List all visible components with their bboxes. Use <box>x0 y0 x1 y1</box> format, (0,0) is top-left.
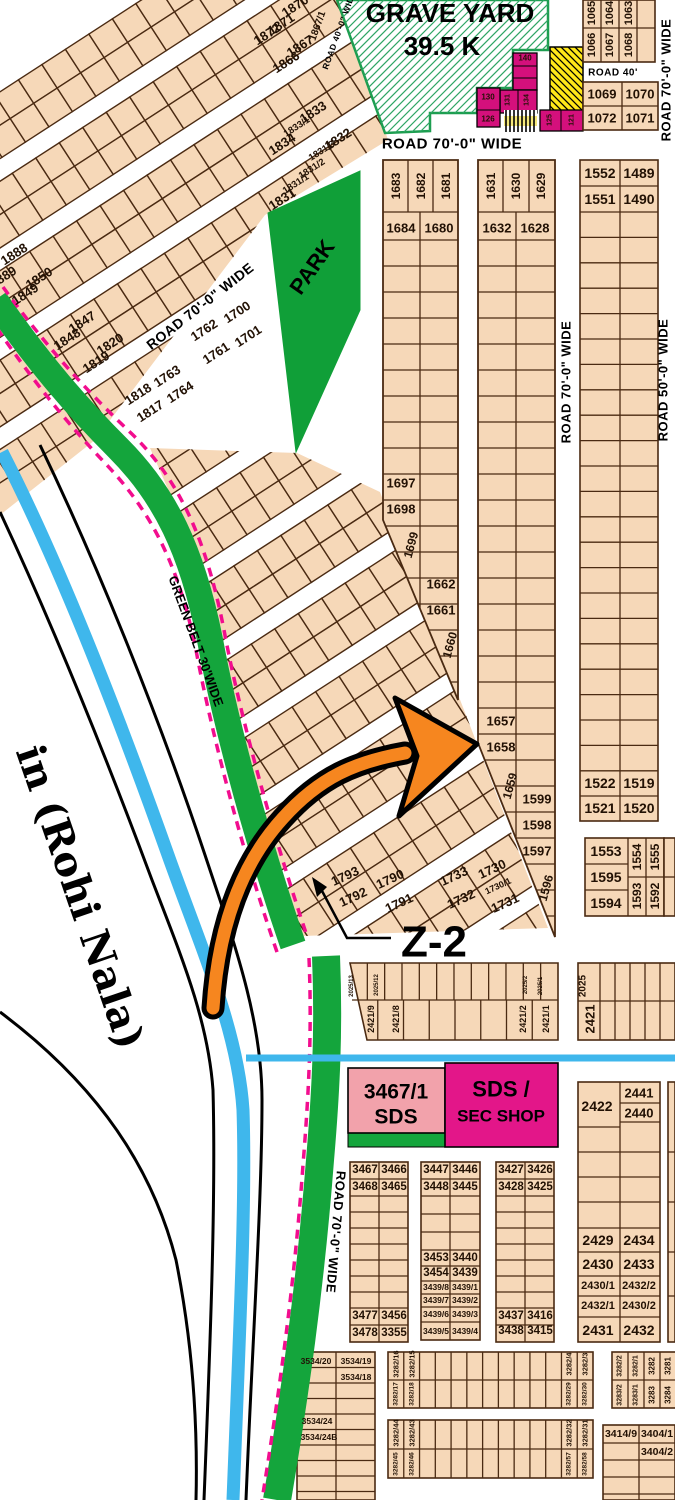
plot-number-label: 3282/31 <box>581 1419 590 1446</box>
plot-number-label: 1661 <box>427 603 456 618</box>
plot-number-label: 3283 <box>648 1386 657 1404</box>
plot-number-label: 1594 <box>590 895 621 911</box>
plot-number-label: 3477 <box>352 1310 378 1322</box>
plot-number-label: 2431 <box>582 1322 613 1338</box>
plot-number-label: 3439 <box>452 1267 478 1279</box>
plot-number-label: 1632 <box>483 221 512 236</box>
plot-number-label: 2025/1 <box>538 976 544 995</box>
plot-number-label: 1072 <box>588 111 617 126</box>
plot-number-label: 2434 <box>623 1232 654 1248</box>
plot-number-label: 3282/15 <box>408 1350 417 1377</box>
gate-crosswalk-symbol <box>504 110 537 132</box>
plot-number-label: 2421/1 <box>541 1005 551 1033</box>
plot-number-label: 1068 <box>623 33 635 57</box>
plot-number-label: 1489 <box>623 165 654 181</box>
plot-number-label: 3355 <box>381 1327 407 1339</box>
plot-number-label: 2432 <box>623 1322 654 1338</box>
sds-plot-label: 3467/1 <box>364 1081 429 1104</box>
plot-number-label: 3439/2 <box>452 1295 478 1305</box>
plot-number-label: 130 <box>481 93 495 102</box>
plot-number-label: 2433 <box>623 1256 654 1272</box>
zone-z2-label: Z-2 <box>401 918 467 967</box>
plot-number-label: 3282 <box>648 1357 657 1375</box>
plot-number-label: 3282/16 <box>392 1350 401 1377</box>
plot-number-label: 1597 <box>523 844 552 859</box>
plot-number-label: 3437 <box>498 1310 524 1322</box>
plot-number-label: 2429 <box>582 1232 613 1248</box>
grave-yard-title: GRAVE YARD <box>366 0 535 28</box>
plot-number-label: 1069 <box>588 87 617 102</box>
plot-number-label: 3534/24 <box>302 1416 333 1426</box>
sds-plot-label: SDS <box>374 1106 417 1129</box>
plot-number-label: 3415 <box>527 1325 553 1337</box>
road-label: ROAD 70'-0" WIDE <box>382 136 522 153</box>
plot-number-label: 126 <box>481 115 495 124</box>
plot-number-label: 3439/8 <box>423 1282 449 1292</box>
plot-number-label: 1063 <box>623 1 635 25</box>
plot-number-label: 1593 <box>630 882 644 909</box>
plot-number-label: 3283/2 <box>617 1384 624 1406</box>
plot-number-label: 1698 <box>387 502 416 517</box>
plot-number-label: 3446 <box>452 1164 478 1176</box>
plot-number-label: 2430 <box>582 1256 613 1272</box>
plot-number-label: 3284 <box>664 1386 673 1404</box>
plot-number-label: 1595 <box>590 869 621 885</box>
plot-number-label: 3439/3 <box>452 1309 478 1319</box>
plot-number-label: 3283/1 <box>633 1384 640 1406</box>
plot-number-label: 2025 <box>578 974 589 997</box>
plot-number-label: 3534/19 <box>341 1356 372 1366</box>
plot-number-label: 1522 <box>584 775 615 791</box>
plot-number-label: 3414/9 <box>605 1428 637 1440</box>
plot-number-label: 125 <box>547 114 554 126</box>
plot-number-label: 1658 <box>487 740 516 755</box>
plot-number-label: 3282/17 <box>393 1382 400 1406</box>
plot-number-label: 3282/30 <box>582 1382 589 1406</box>
plot-strip-1489-1552 <box>580 160 658 821</box>
plot-number-label: 2432/1 <box>581 1300 615 1312</box>
plot-number-label: 3282/4 <box>565 1352 574 1376</box>
plot-number-label: 134 <box>524 94 531 106</box>
plot-number-label: 3465 <box>381 1181 407 1193</box>
plot-number-label: 3534/20 <box>301 1356 332 1366</box>
plot-number-label: 3404/1 <box>641 1428 673 1440</box>
plot-number-label: 2421/8 <box>391 1005 401 1033</box>
plot-number-label: 1553 <box>590 843 621 859</box>
plot-number-label: 1065 <box>586 1 598 25</box>
plot-number-label: 1630 <box>509 172 523 199</box>
plot-number-label: 3282/2 <box>617 1355 624 1377</box>
plot-number-label: 1697 <box>387 476 416 491</box>
strip-3282-upper <box>388 1352 593 1408</box>
society-plot-map: 187018711867187218661867/1183318321833/1… <box>0 0 675 1500</box>
plot-number-label: 1071 <box>626 111 655 126</box>
plot-number-label: 1662 <box>427 577 456 592</box>
plot-number-label: 1598 <box>523 818 552 833</box>
map-viewport: 187018711867187218661867/1183318321833/1… <box>0 0 675 1500</box>
plot-number-label: 2422 <box>581 1098 612 1114</box>
plot-number-label: 2430/2 <box>622 1300 656 1312</box>
plot-number-label: 2430/1 <box>581 1280 615 1292</box>
plot-number-label: 3456 <box>381 1310 407 1322</box>
plot-number-label: 3282/45 <box>393 1452 400 1476</box>
plot-number-label: 3439/1 <box>452 1282 478 1292</box>
plot-number-label: 3282/18 <box>409 1382 416 1406</box>
plot-number-label: 1555 <box>648 843 662 870</box>
plot-number-label: 3282/43 <box>408 1419 417 1446</box>
plot-number-label: 3282/57 <box>566 1452 573 1476</box>
plot-number-label: 1552 <box>584 165 615 181</box>
plot-number-label: 1066 <box>586 33 598 57</box>
plot-number-label: 3282/3 <box>581 1353 590 1376</box>
plot-number-label: 1680 <box>425 221 454 236</box>
plot-number-label: 2421/9 <box>366 1005 376 1033</box>
plot-number-label: 3448 <box>423 1181 449 1193</box>
plot-number-label: 131 <box>505 94 512 106</box>
plot-number-label: 3427 <box>498 1164 524 1176</box>
plot-number-label: 3425 <box>527 1181 553 1193</box>
plot-number-label: 3467 <box>352 1164 378 1176</box>
road-label: ROAD 40' <box>588 68 638 79</box>
plot-number-label: 3428 <box>498 1181 524 1193</box>
plot-number-label: 1554 <box>630 843 644 870</box>
plot-number-label: 1599 <box>523 792 552 807</box>
strip-3282-lower <box>388 1420 593 1478</box>
plot-number-label: 1070 <box>626 87 655 102</box>
plot-number-label: 1631 <box>484 172 498 199</box>
plot-number-label: 1684 <box>387 221 417 236</box>
plot-number-label: 3454 <box>423 1267 449 1279</box>
plot-number-label: 1520 <box>623 800 654 816</box>
road-label: ROAD 70'-0" WIDE <box>659 19 674 142</box>
plot-number-label: 3282/29 <box>566 1382 573 1406</box>
plot-number-label: 3439/6 <box>423 1309 449 1319</box>
plot-number-label: 140 <box>518 54 532 63</box>
plot-number-label: 1067 <box>604 33 616 57</box>
plot-number-label: 3439/7 <box>423 1295 449 1305</box>
plot-number-label: 3534/18 <box>341 1372 372 1382</box>
plot-number-label: 3439/5 <box>423 1326 449 1336</box>
plot-number-label: 3440 <box>452 1252 478 1264</box>
sec-shop-label: SEC SHOP <box>457 1107 545 1126</box>
plot-number-label: 3404/2 <box>641 1446 673 1458</box>
plot-number-label: 3416 <box>527 1310 553 1322</box>
plot-number-label: 1682 <box>414 172 428 199</box>
plot-number-label: 2025/2 <box>523 975 529 994</box>
plot-number-label: 2440 <box>625 1106 654 1121</box>
plot-number-label: 1681 <box>439 172 453 199</box>
plot-number-label: 1490 <box>623 191 654 207</box>
plot-number-label: 3282/1 <box>633 1355 640 1377</box>
plot-number-label: 121 <box>569 114 576 126</box>
plot-number-label: 1592 <box>648 882 662 909</box>
plot-number-label: 1064 <box>604 0 616 25</box>
plot-number-label: 3468 <box>352 1181 378 1193</box>
plot-number-label: 3282/32 <box>565 1419 574 1446</box>
plot-number-label: 3534/24B <box>301 1432 338 1442</box>
plot-number-label: 3478 <box>352 1327 378 1339</box>
plot-number-label: 2421 <box>583 1005 598 1034</box>
plot-number-label: 3282/46 <box>409 1452 416 1476</box>
plot-number-label: 3282/44 <box>392 1419 401 1447</box>
plot-number-label: 1521 <box>584 800 615 816</box>
plot-number-label: 3453 <box>423 1252 449 1264</box>
plot-number-label: 3281 <box>664 1357 673 1375</box>
plot-number-label: 2025/13 <box>349 975 355 997</box>
road-label: ROAD 70'-0" WIDE <box>559 321 574 444</box>
plot-number-label: 1629 <box>534 172 548 199</box>
plot-number-label: 1628 <box>521 221 550 236</box>
plot-number-label: 1657 <box>487 714 516 729</box>
plot-number-label: 3438 <box>498 1325 524 1337</box>
plot-number-label: 2441 <box>625 1086 654 1101</box>
plot-number-label: 1683 <box>389 172 403 199</box>
plot-number-label: 3439/4 <box>452 1326 478 1336</box>
plot-number-label: 1551 <box>584 191 615 207</box>
grave-yard-size: 39.5 K <box>404 31 481 61</box>
plot-number-label: 3466 <box>381 1164 407 1176</box>
plot-number-label: 2421/2 <box>518 1005 528 1033</box>
road-label: ROAD 50'-0" WIDE <box>656 319 671 442</box>
plot-number-label: 3445 <box>452 1181 478 1193</box>
plot-number-label: 3426 <box>527 1164 553 1176</box>
sec-shop-label: SDS / <box>472 1077 529 1102</box>
plot-number-label: 2432/2 <box>622 1280 656 1292</box>
plot-number-label: 2025/12 <box>374 974 380 996</box>
plot-number-label: 3282/58 <box>582 1452 589 1476</box>
plot-number-label: 1519 <box>623 775 654 791</box>
plot-number-label: 3447 <box>423 1164 449 1176</box>
